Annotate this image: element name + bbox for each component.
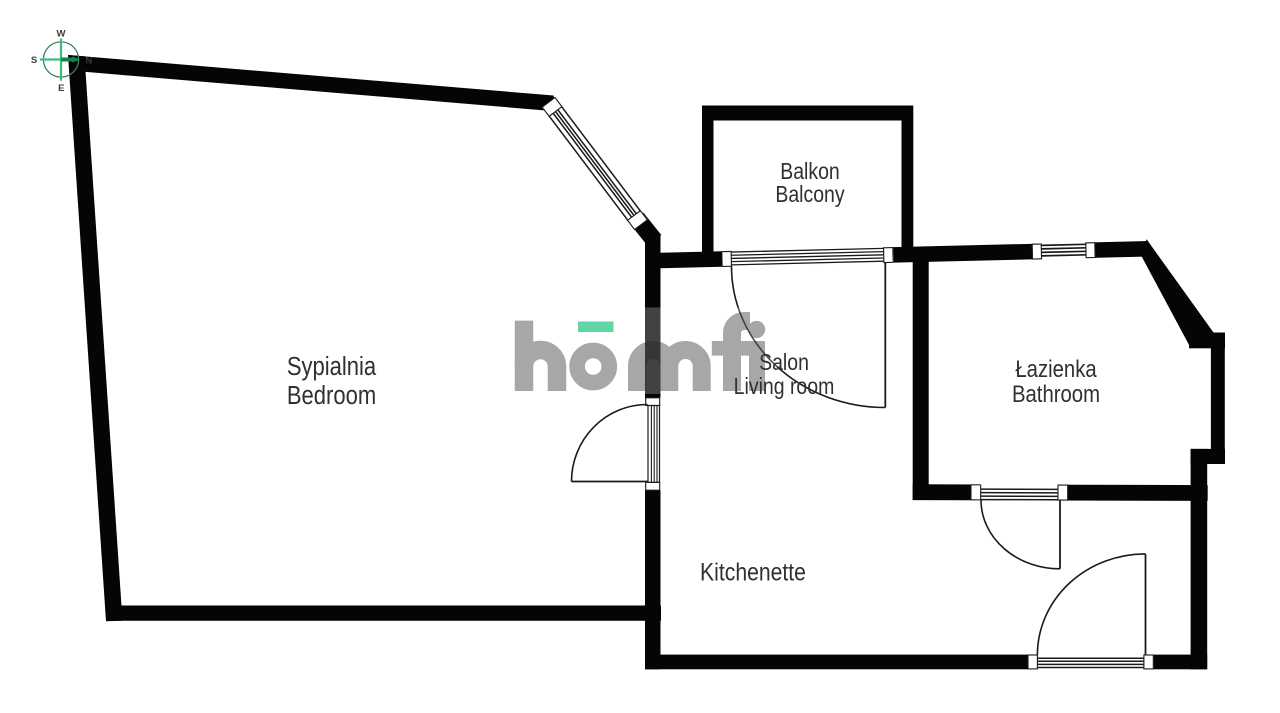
- svg-text:Living room: Living room: [734, 373, 835, 399]
- svg-text:E: E: [58, 83, 64, 94]
- svg-text:Bathroom: Bathroom: [1012, 380, 1100, 407]
- svg-text:N: N: [85, 55, 92, 66]
- svg-text:S: S: [31, 55, 37, 66]
- svg-text:Sypialnia: Sypialnia: [287, 352, 377, 381]
- svg-text:Salon: Salon: [759, 349, 809, 375]
- svg-text:Bedroom: Bedroom: [287, 381, 376, 410]
- svg-text:W: W: [57, 28, 66, 39]
- svg-text:Kitchenette: Kitchenette: [700, 558, 806, 586]
- svg-text:Łazienka: Łazienka: [1015, 355, 1097, 382]
- svg-text:Balcony: Balcony: [775, 181, 845, 207]
